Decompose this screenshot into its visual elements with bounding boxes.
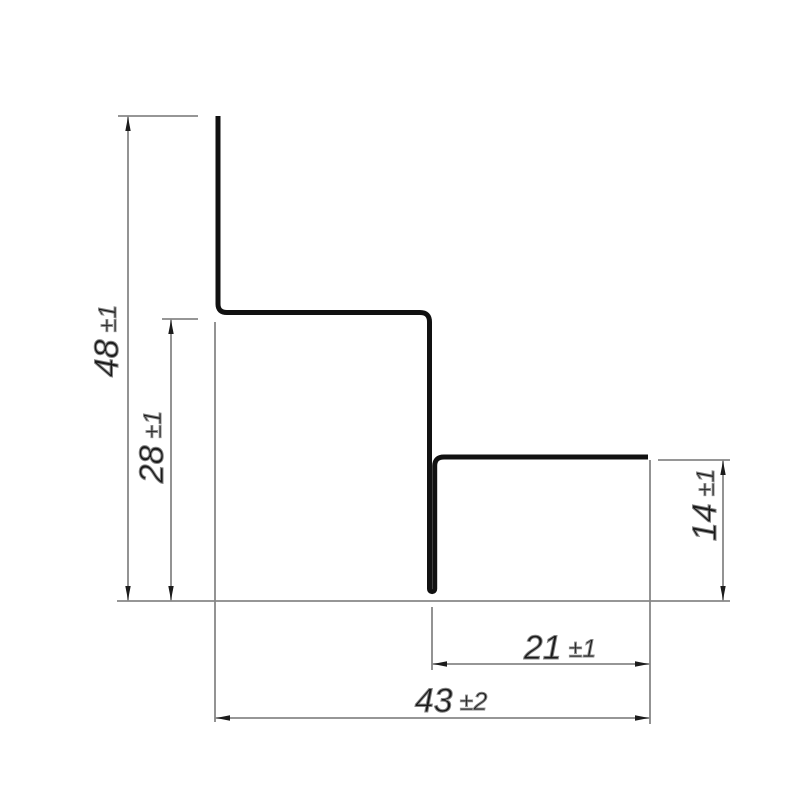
dim-tolerance-21: ±1 bbox=[569, 635, 597, 663]
arrow-up-icon bbox=[125, 117, 130, 131]
dim-value-43: 43 bbox=[415, 682, 453, 720]
dim-label-28: 28±1 bbox=[133, 411, 171, 484]
dim-tolerance-28: ±1 bbox=[139, 411, 167, 439]
dim-label-14: 14±1 bbox=[686, 469, 724, 541]
profile-outline bbox=[218, 116, 648, 592]
dim-value-14: 14 bbox=[686, 503, 724, 541]
dimension-total-height: 48±1 bbox=[88, 116, 198, 601]
dim-tolerance-14: ±1 bbox=[692, 469, 720, 497]
dim-value-48: 48 bbox=[88, 339, 126, 377]
dim-label-48: 48±1 bbox=[88, 305, 126, 377]
dimension-step-width: 21±1 bbox=[432, 607, 650, 670]
profile-path bbox=[218, 116, 648, 592]
arrow-up-icon bbox=[720, 461, 725, 475]
arrow-down-icon bbox=[125, 586, 130, 600]
dimension-right-height: 14±1 bbox=[658, 460, 730, 601]
arrow-right-icon bbox=[635, 715, 649, 720]
dim-tolerance-48: ±1 bbox=[94, 305, 122, 333]
arrow-left-icon bbox=[216, 715, 230, 720]
dim-tolerance-43: ±2 bbox=[460, 688, 488, 716]
arrow-down-icon bbox=[720, 586, 725, 600]
dim-value-28: 28 bbox=[133, 445, 171, 484]
arrow-down-icon bbox=[168, 586, 173, 600]
dimension-step-height: 28±1 bbox=[133, 319, 198, 601]
arrow-up-icon bbox=[168, 320, 173, 334]
technical-drawing: 48±1 28±1 14±1 21±1 43±2 bbox=[0, 0, 800, 800]
dim-label-43: 43±2 bbox=[415, 682, 488, 720]
arrow-right-icon bbox=[635, 661, 649, 666]
drawing-canvas: 48±1 28±1 14±1 21±1 43±2 bbox=[0, 0, 800, 800]
arrow-left-icon bbox=[433, 661, 447, 666]
dim-value-21: 21 bbox=[523, 629, 562, 667]
dim-label-21: 21±1 bbox=[523, 629, 596, 667]
